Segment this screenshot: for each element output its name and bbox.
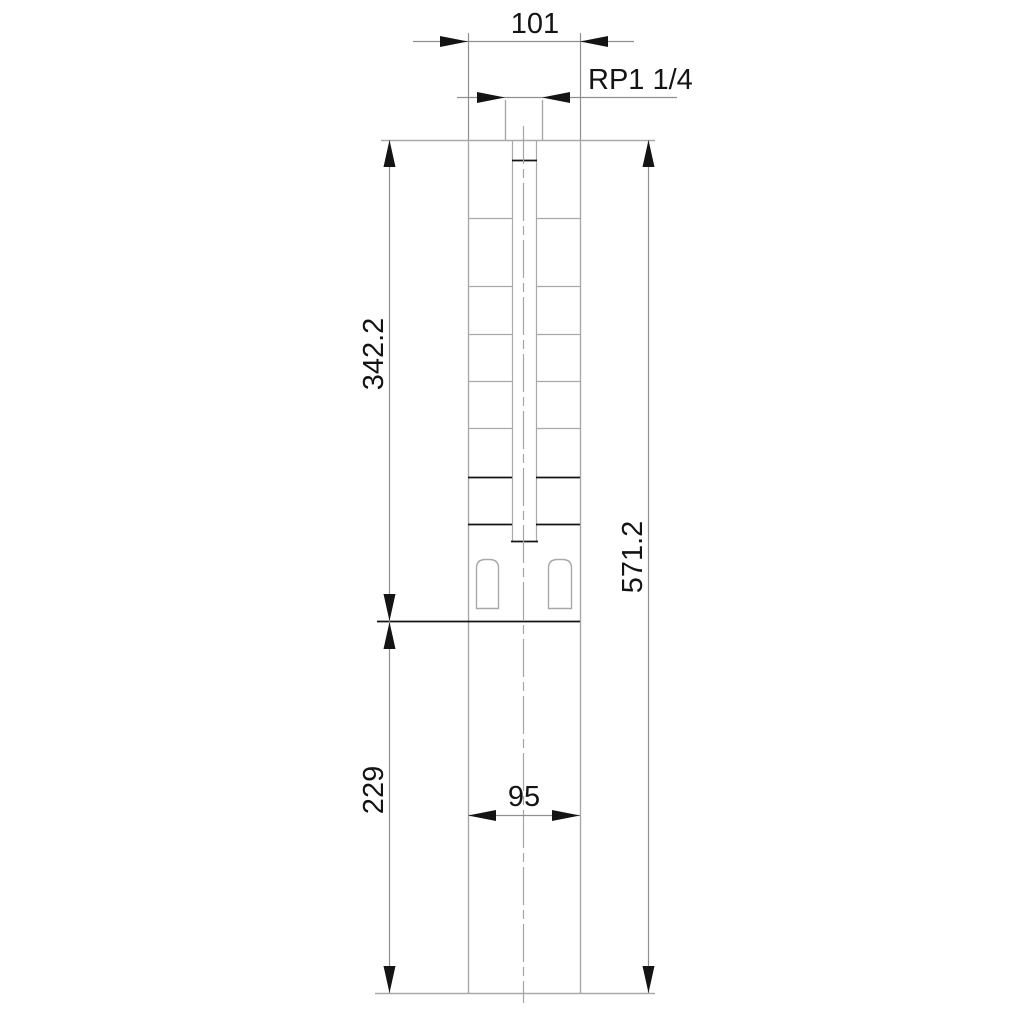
- slot-right: [549, 560, 572, 609]
- arrowhead: [384, 622, 396, 649]
- arrowhead: [477, 92, 505, 103]
- arrowhead: [643, 966, 655, 993]
- arrowhead: [552, 810, 580, 821]
- arrowhead: [643, 140, 655, 167]
- motor-width-label: 95: [508, 781, 540, 813]
- motor-section-length-label: 229: [358, 766, 390, 814]
- pump-section-length-label: 342.2: [358, 318, 390, 391]
- arrowhead: [384, 966, 396, 993]
- slot-left: [477, 560, 499, 609]
- pump-body-outline: [375, 100, 655, 1003]
- arrowhead: [440, 36, 468, 47]
- dimension-motor-width: 95: [468, 781, 580, 821]
- arrowhead: [542, 92, 570, 103]
- outlet-width-label: 101: [511, 8, 559, 40]
- dimension-thread-connection: RP1 1/4: [457, 64, 693, 103]
- arrowhead: [384, 140, 396, 167]
- arrowhead: [580, 36, 608, 47]
- dimension-pump-and-motor-length: 342.2 229: [358, 140, 396, 993]
- arrowhead: [384, 594, 396, 621]
- dimension-total-length: 571.2: [617, 140, 655, 993]
- total-length-label: 571.2: [617, 521, 649, 594]
- arrowhead: [468, 810, 496, 821]
- drawing-canvas: 101 RP1 1/4 342.2 229 571.2 95: [0, 0, 1024, 1024]
- pump-dimensional-drawing: 101 RP1 1/4 342.2 229 571.2 95: [0, 0, 1024, 1024]
- thread-connection-label: RP1 1/4: [588, 64, 693, 96]
